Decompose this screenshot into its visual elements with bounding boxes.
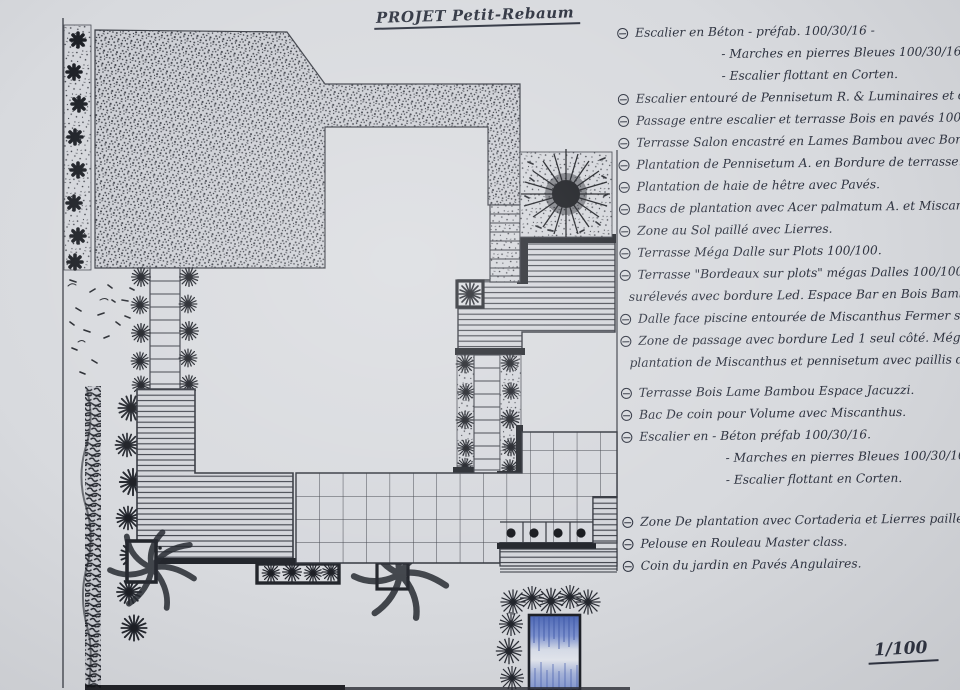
note-item: Dalle face piscine entourée de Miscanthu…: [620, 305, 960, 329]
note-text: Terrasse Méga Dalle sur Plots 100/100.: [637, 240, 881, 263]
gravel-area: [95, 30, 520, 268]
circled-dash-bullet-icon: [621, 410, 632, 421]
note-item: Escalier en - Béton préfab 100/30/16.: [621, 423, 960, 447]
note-item: Terrasse Méga Dalle sur Plots 100/100.: [619, 239, 960, 263]
circled-dash-bullet-icon: [618, 138, 629, 149]
note-text: Escalier entouré de Pennisetum R. & Lumi…: [636, 85, 960, 109]
note-text: Bacs de plantation avec Acer palmatum A.…: [637, 195, 960, 219]
note-item: Escalier entouré de Pennisetum R. & Lumi…: [618, 85, 960, 109]
notes-list: Escalier en Béton - préfab. 100/30/16 --…: [617, 17, 960, 621]
note-text: Zone de passage avec bordure Led 1 seul …: [638, 327, 960, 351]
note-text: - Escalier flottant en Corten.: [726, 468, 903, 490]
note-item: Bacs de plantation avec Acer palmatum A.…: [619, 195, 960, 219]
note-text: Coin du jardin en Pavés Angulaires.: [641, 553, 862, 575]
circled-dash-bullet-icon: [618, 116, 629, 127]
note-item: Terrasse "Bordeaux sur plots" mégas Dall…: [620, 261, 960, 285]
circled-dash-bullet-icon: [622, 517, 633, 528]
note-subitem: - Escalier flottant en Corten.: [622, 467, 960, 491]
note-text: Dalle face piscine entourée de Miscanthu…: [638, 305, 960, 329]
note-item: Passage entre escalier et terrasse Bois …: [618, 107, 960, 131]
note-item: Plantation de haie de hêtre avec Pavés.: [619, 173, 960, 197]
left-shrub-strip: [64, 25, 91, 270]
note-item: Zone au Sol paillé avec Lierres.: [619, 217, 960, 241]
circled-dash-bullet-icon: [621, 432, 632, 443]
note-subitem: - Marches en pierres Bleues 100/30/100.: [621, 445, 960, 469]
mulch-fleck-zone: [68, 280, 134, 374]
circled-dash-bullet-icon: [620, 336, 631, 347]
note-text: Terrasse "Bordeaux sur plots" mégas Dall…: [638, 261, 960, 285]
note-subitem: surélevés avec bordure Led. Espace Bar e…: [620, 283, 960, 307]
note-item: Zone de passage avec bordure Led 1 seul …: [620, 327, 960, 351]
note-item: Terrasse Bois Lame Bambou Espace Jacuzzi…: [621, 379, 960, 403]
deck-planter-box: [457, 281, 483, 307]
pool: [529, 615, 580, 690]
terrace-thick-border-bottom: [455, 348, 525, 355]
circled-dash-bullet-icon: [619, 226, 630, 237]
circled-dash-bullet-icon: [618, 94, 629, 105]
circled-dash-bullet-icon: [618, 160, 629, 171]
circled-dash-bullet-icon: [619, 204, 630, 215]
circled-dash-bullet-icon: [619, 182, 630, 193]
note-text: surélevés avec bordure Led. Espace Bar e…: [629, 283, 960, 307]
note-item: Coin du jardin en Pavés Angulaires.: [623, 552, 960, 576]
upper-stairs: [490, 205, 520, 282]
circled-dash-bullet-icon: [620, 270, 631, 281]
scale-label: 1/100: [867, 637, 938, 665]
corner-plant: [110, 532, 194, 608]
upper-stepping-path: [131, 268, 198, 394]
note-subitem: plantation de Miscanthus et pennisetum a…: [620, 349, 960, 373]
note-item: Bac De coin pour Volume avec Miscanthus.: [621, 401, 960, 425]
middle-planting-strips: [453, 354, 524, 478]
scribble-hedge: [81, 386, 101, 688]
circled-dash-bullet-icon: [619, 248, 630, 259]
note-text: - Marches en pierres Bleues 100/30/16.: [721, 41, 960, 64]
note-item: Plantation de Pennisetum A. en Bordure d…: [618, 151, 960, 175]
note-text: - Marches en pierres Bleues 100/30/100.: [725, 445, 960, 468]
note-subitem: - Escalier flottant en Corten.: [617, 63, 960, 87]
note-text: plantation de Miscanthus et pennisetum a…: [629, 349, 960, 373]
note-item: Terrasse Salon encastré en Lames Bambou …: [618, 129, 960, 153]
note-text: Plantation de Pennisetum A. en Bordure d…: [636, 151, 960, 174]
note-text: Passage entre escalier et terrasse Bois …: [636, 107, 960, 131]
circled-dash-bullet-icon: [620, 314, 631, 325]
note-text: Terrasse Salon encastré en Lames Bambou …: [636, 129, 960, 153]
note-text: - Escalier flottant en Corten.: [721, 64, 898, 86]
note-subitem: - Marches en pierres Bleues 100/30/16.: [617, 41, 960, 65]
note-text: Escalier en Béton - préfab. 100/30/16 -: [635, 20, 875, 43]
note-text: Zone De plantation avec Cortaderia et Li…: [640, 508, 960, 531]
note-text: Escalier en - Béton préfab 100/30/16.: [639, 424, 871, 446]
note-item: Pelouse en Rouleau Master class.: [622, 530, 960, 554]
note-text: Bac De coin pour Volume avec Miscanthus.: [639, 402, 906, 425]
tree-bed: [520, 149, 612, 237]
note-item: Zone De plantation avec Cortaderia et Li…: [622, 508, 960, 532]
circled-dash-bullet-icon: [623, 561, 634, 572]
garden-plan-photo: PROJET Petit-Rebaum Escalier en Béton - …: [0, 0, 960, 690]
circled-dash-bullet-icon: [622, 539, 633, 550]
circled-dash-bullet-icon: [617, 28, 628, 39]
corner-planter: [110, 532, 194, 608]
note-text: Terrasse Bois Lame Bambou Espace Jacuzzi…: [639, 380, 915, 403]
note-text: Plantation de haie de hêtre avec Pavés.: [637, 174, 880, 197]
note-text: Pelouse en Rouleau Master class.: [640, 532, 847, 554]
circled-dash-bullet-icon: [621, 388, 632, 399]
note-item: Escalier en Béton - préfab. 100/30/16 -: [617, 19, 960, 43]
note-text: Zone au Sol paillé avec Lierres.: [637, 219, 833, 241]
center-planter: [257, 563, 340, 583]
